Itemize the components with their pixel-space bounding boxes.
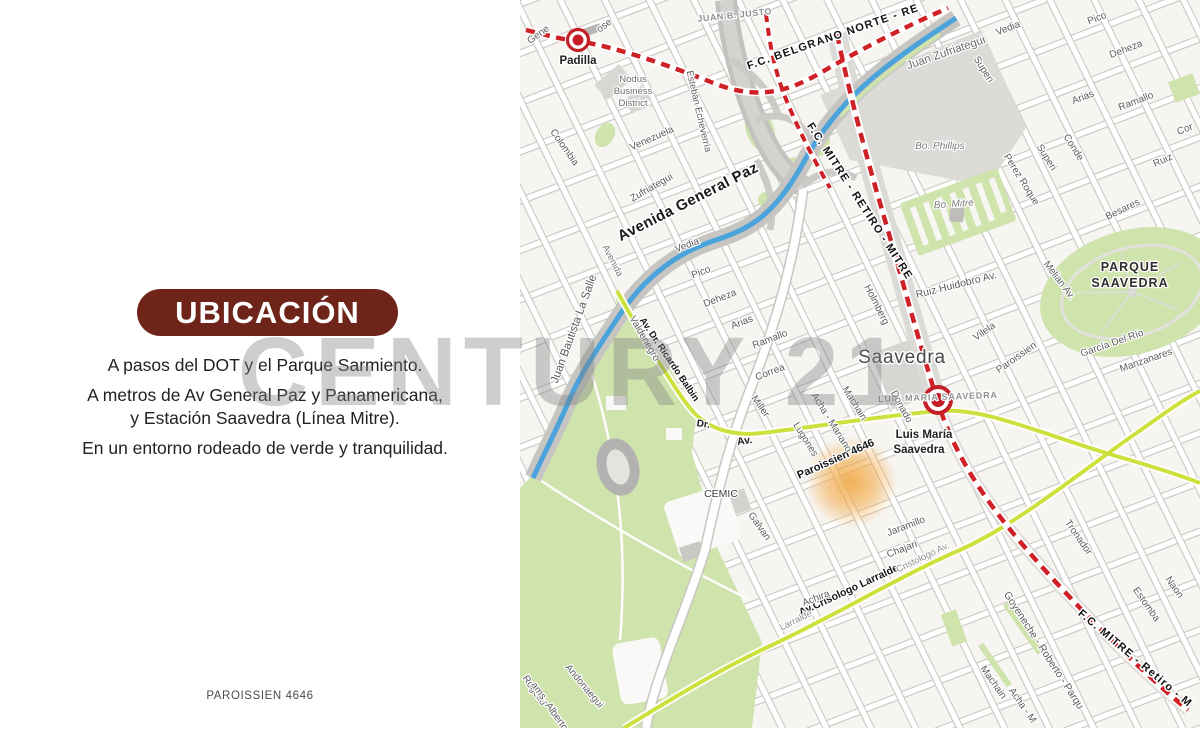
section-title-badge: UBICACIÓN — [137, 289, 398, 336]
map-label: Business — [614, 86, 653, 97]
map-label: Saavedra — [858, 347, 946, 368]
map-label: Dr. — [696, 418, 711, 431]
map-label: Nodus — [619, 74, 647, 85]
location-map[interactable]: F.C. MITRE - RETIRO - MITREF.C. BELGRANO… — [520, 0, 1200, 728]
info-panel: UBICACIÓN A pasos del DOT y el Parque Sa… — [0, 0, 520, 750]
description-line: A metros de Av General Paz y Panamerican… — [40, 384, 490, 407]
description-line: En un entorno rodeado de verde y tranqui… — [40, 437, 490, 460]
location-description: A pasos del DOT y el Parque Sarmiento. A… — [40, 354, 490, 467]
map-label: SAAVEDRA — [1091, 276, 1168, 290]
map-label: Bo. Phillips — [915, 141, 964, 152]
map-label: PARQUE — [1101, 260, 1160, 274]
section-title: UBICACIÓN — [175, 295, 360, 331]
map-label: Av. — [736, 434, 753, 448]
map-label: CEMIC — [704, 488, 738, 500]
map-label: Luis María — [896, 429, 953, 441]
property-address: PAROISSIEN 4646 — [0, 690, 520, 702]
map-label: Saavedra — [893, 444, 945, 456]
map-canvas: F.C. MITRE - RETIRO - MITREF.C. BELGRANO… — [520, 0, 1200, 728]
description-line: y Estación Saavedra (Línea Mitre). — [40, 407, 490, 430]
description-line: A pasos del DOT y el Parque Sarmiento. — [40, 354, 490, 377]
map-label: Padilla — [559, 55, 597, 67]
map-label: District — [618, 98, 647, 109]
